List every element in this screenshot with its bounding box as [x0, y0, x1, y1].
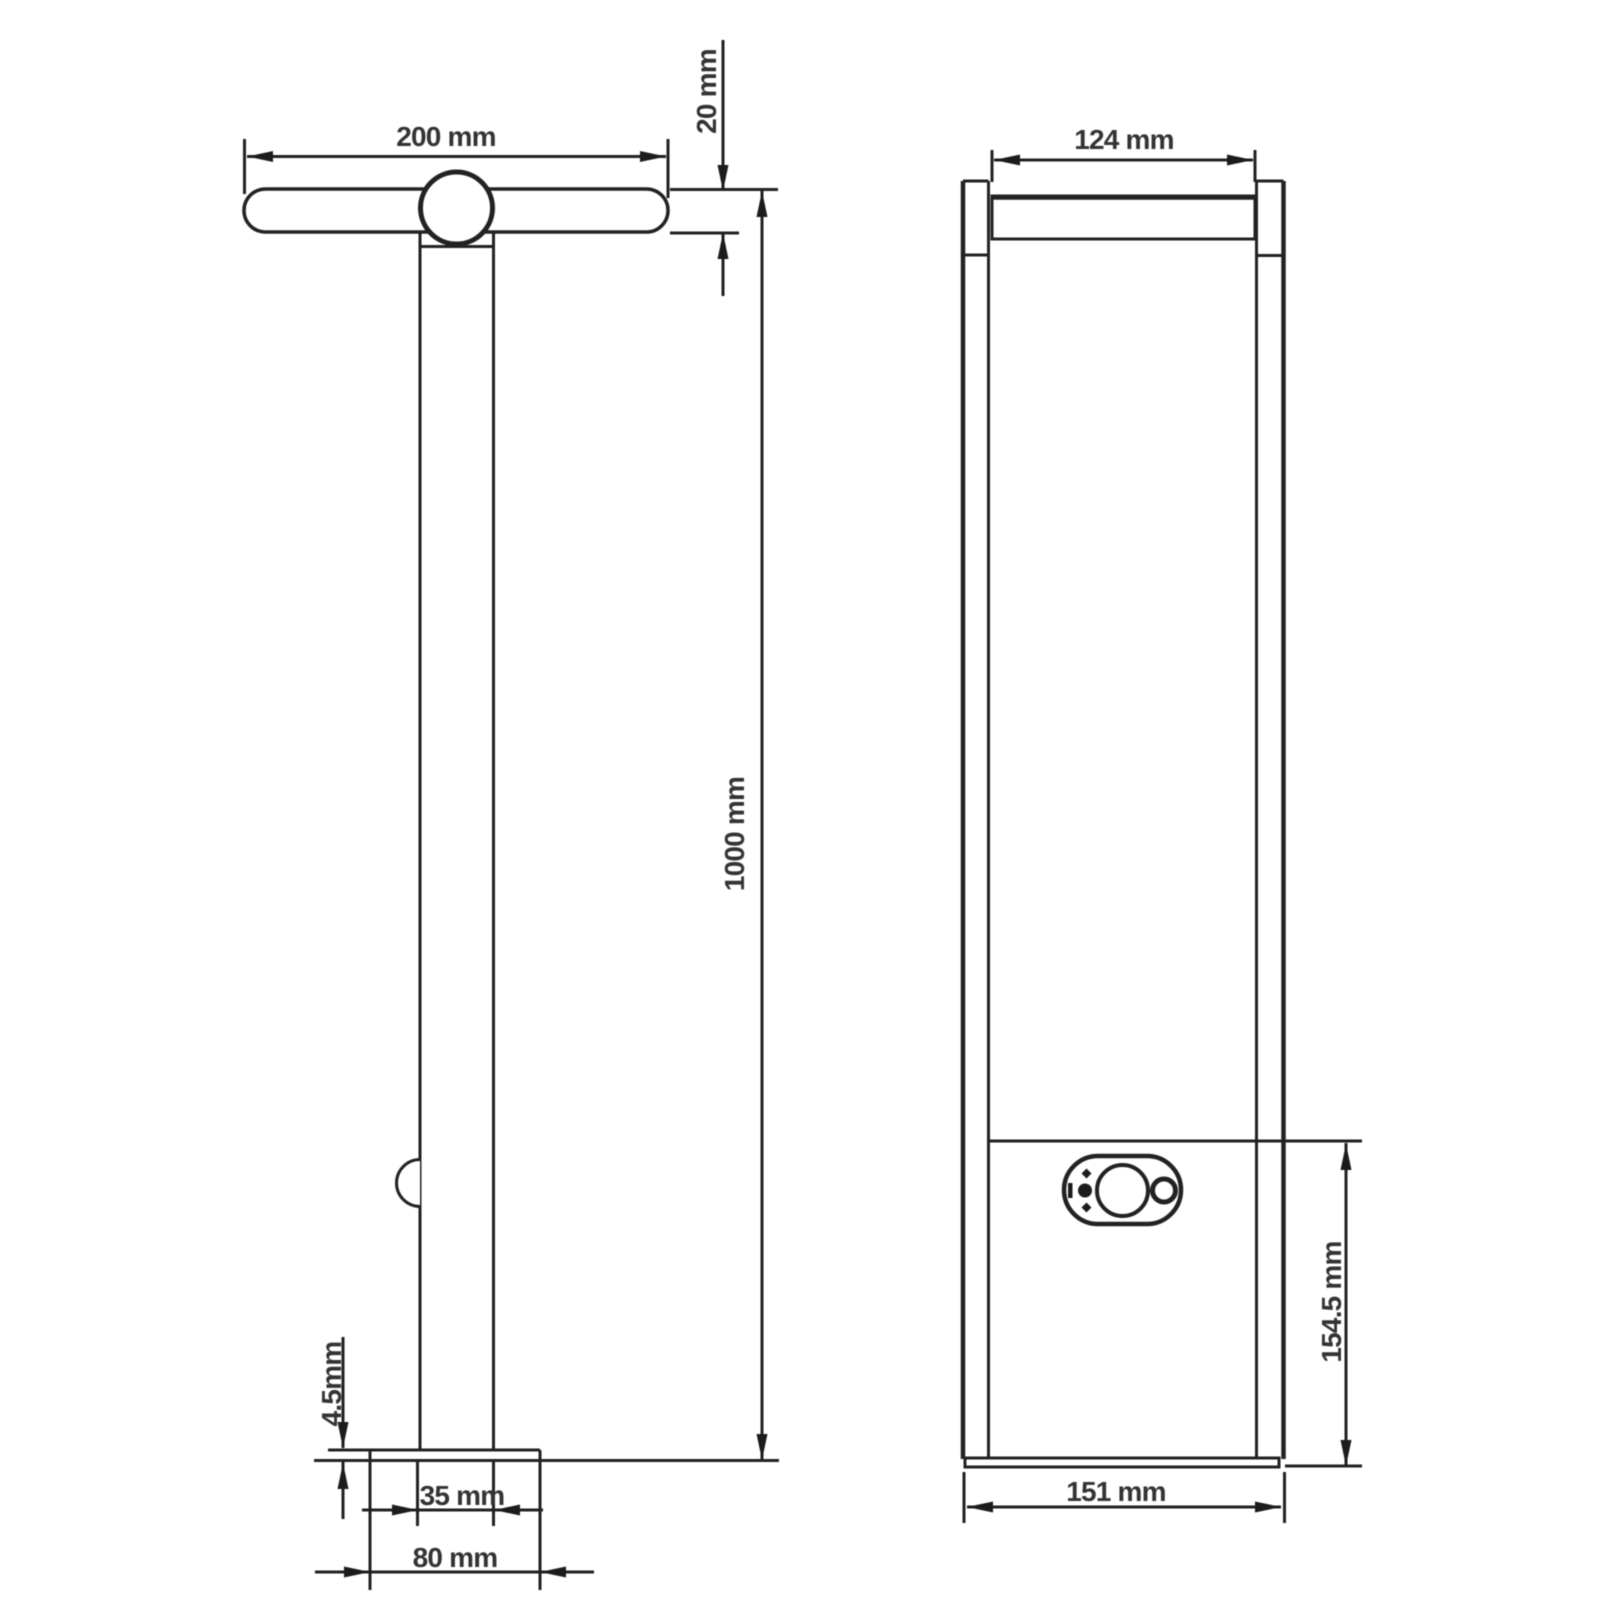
svg-text:154.5 mm: 154.5 mm [1316, 1241, 1347, 1362]
svg-text:151 mm: 151 mm [1066, 1476, 1166, 1507]
svg-text:1000 mm: 1000 mm [719, 777, 750, 891]
svg-text:4.5mm: 4.5mm [316, 1342, 347, 1427]
svg-text:20 mm: 20 mm [691, 49, 722, 134]
svg-text:35 mm: 35 mm [420, 1480, 505, 1511]
svg-text:80 mm: 80 mm [413, 1542, 498, 1573]
svg-text:200 mm: 200 mm [396, 121, 496, 152]
svg-text:124 mm: 124 mm [1074, 124, 1174, 155]
